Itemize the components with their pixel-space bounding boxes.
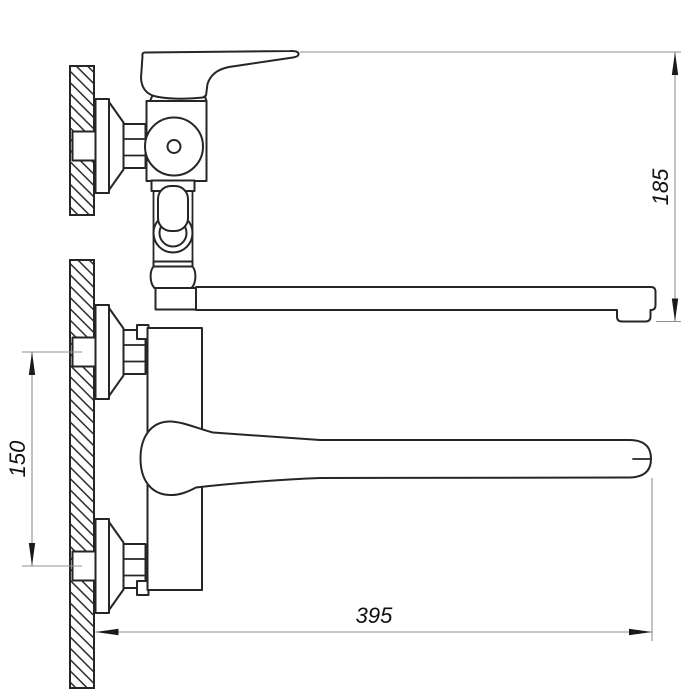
- swivel-inner-tube: [158, 186, 188, 231]
- arrowhead-up: [29, 352, 35, 375]
- drawing-canvas: 185 150 395: [0, 0, 700, 700]
- spout-side: [196, 287, 656, 322]
- side-view: [70, 51, 656, 322]
- spout-base: [156, 288, 197, 310]
- dimension-label-395: 395: [356, 603, 393, 628]
- arrowhead-up: [672, 52, 678, 75]
- wall-section-bottom: [70, 260, 94, 688]
- arrowhead-down: [29, 543, 35, 566]
- arrowhead-left: [96, 629, 119, 635]
- spout-front-with-handle-knob: [141, 421, 652, 495]
- arrowhead-right: [629, 629, 652, 635]
- faucet-technical-drawing: 185 150 395: [0, 0, 700, 700]
- dimension-185: 185: [300, 52, 681, 322]
- spout-base-collar: [151, 267, 196, 289]
- dimension-label-185: 185: [648, 168, 673, 205]
- dimension-label-150: 150: [5, 440, 30, 477]
- cartridge-screw: [168, 140, 181, 153]
- arrowhead-down: [672, 299, 678, 322]
- lever-handle-side: [141, 51, 299, 99]
